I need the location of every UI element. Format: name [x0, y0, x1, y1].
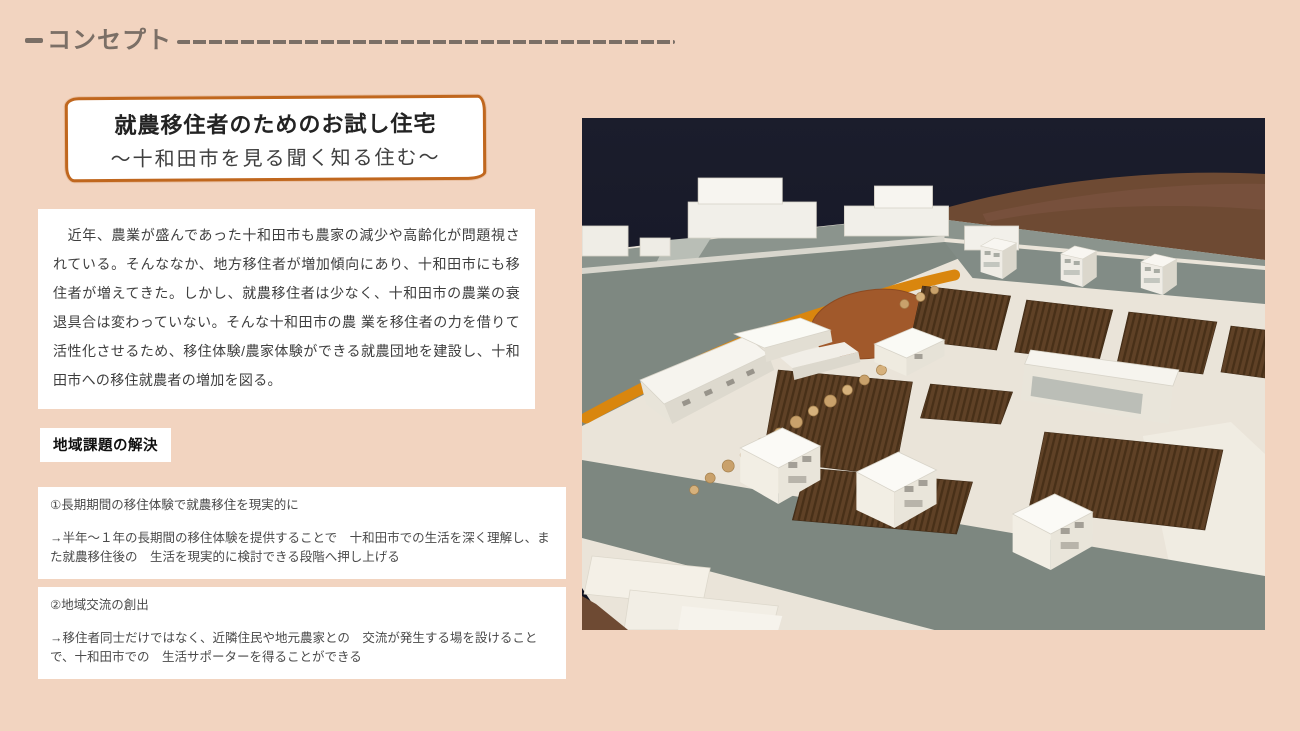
point-card: ②地域交流の創出 →移住者同士だけではなく、近隣住民や地元農家との 交流が発生す… [38, 587, 566, 679]
header-rule [177, 40, 675, 44]
model-photo [582, 118, 1265, 630]
header-dash [25, 38, 43, 43]
title-main: 就農移住者のためのお試し住宅 [114, 106, 436, 140]
point-heading: ①長期期間の移住体験で就農移住を現実的に [50, 497, 554, 515]
section-header-label: コンセプト [47, 24, 172, 58]
point-card: ①長期期間の移住体験で就農移住を現実的に →半年〜１年の長期間の移住体験を提供す… [38, 487, 566, 579]
title-subtitle: 〜十和田市を見る聞く知る住む〜 [111, 140, 441, 171]
section-label: 地域課題の解決 [40, 428, 171, 462]
point-body: →半年〜１年の長期間の移住体験を提供することで 十和田市での生活を深く理解し、ま… [50, 529, 554, 568]
section-header: コンセプト [25, 24, 675, 58]
point-body: →移住者同士だけではなく、近隣住民や地元農家との 交流が発生する場を設けることで… [50, 629, 554, 668]
point-heading: ②地域交流の創出 [50, 597, 554, 615]
title-card: 就農移住者のためのお試し住宅 〜十和田市を見る聞く知る住む〜 [65, 95, 487, 183]
slide: コンセプト 就農移住者のためのお試し住宅 〜十和田市を見る聞く知る住む〜 近年、… [0, 0, 1300, 731]
intro-card: 近年、農業が盛んであった十和田市も農家の減少や高齢化が問題視されている。そんなな… [38, 209, 535, 409]
intro-text: 近年、農業が盛んであった十和田市も農家の減少や高齢化が問題視されている。そんなな… [53, 221, 520, 395]
model-photo-scene [582, 118, 1265, 630]
